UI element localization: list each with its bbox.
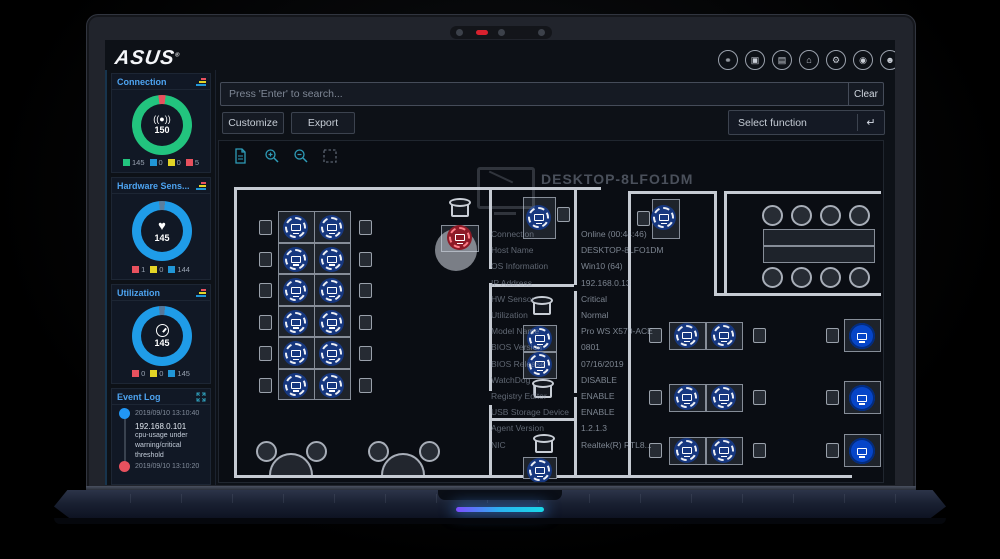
event-dot[interactable]	[119, 408, 130, 419]
tooltip-label: Utilization	[491, 310, 581, 320]
legend-swatch	[150, 370, 157, 377]
chair	[637, 211, 650, 226]
legend-value: 0	[159, 158, 163, 167]
legend-item: 0	[132, 369, 145, 378]
monitor-glyph	[534, 214, 544, 221]
legend-item: 144	[168, 265, 190, 274]
wall	[491, 418, 574, 421]
display-device-icon[interactable]	[849, 438, 875, 464]
monitor-glyph	[682, 447, 692, 454]
chair	[359, 346, 372, 361]
round-chair	[306, 441, 327, 462]
monitor-glyph	[682, 332, 692, 339]
round-chair	[820, 205, 841, 226]
round-chair	[791, 267, 812, 288]
broadcast-icon: ((●))	[153, 115, 170, 124]
chair	[826, 443, 839, 458]
device-icon[interactable]	[711, 323, 736, 348]
round-chair	[762, 205, 783, 226]
base-bottom-lip	[54, 518, 946, 524]
device-icon[interactable]	[283, 373, 308, 398]
legend-swatch	[150, 266, 157, 273]
device-icon[interactable]	[283, 215, 308, 240]
export-button[interactable]: Export	[291, 112, 355, 134]
tooltip-value: Normal	[581, 310, 608, 320]
tooltip-label: OS Information	[491, 261, 581, 271]
chair	[259, 220, 272, 235]
device-icon[interactable]	[319, 373, 344, 398]
monitor-glyph	[327, 350, 337, 357]
legend-swatch	[150, 159, 157, 166]
connection-widget-title: Connection	[117, 77, 167, 87]
tooltip-label: Connection	[491, 229, 581, 239]
clear-button[interactable]: Clear	[848, 83, 883, 105]
round-chair	[849, 267, 870, 288]
legend-value: 0	[159, 265, 163, 274]
device-icon[interactable]	[283, 278, 308, 303]
tooltip-value: Realtek(R) RTL8...	[581, 440, 652, 450]
expand-icon[interactable]	[196, 392, 206, 402]
tooltip-value: 192.168.0.13	[581, 278, 631, 288]
trackpad-glow-bar	[456, 507, 544, 512]
chair	[753, 390, 766, 405]
tooltip-field: OS InformationWin10 (64)	[491, 261, 623, 271]
chair	[826, 328, 839, 343]
heart-pulse-icon: ♥	[158, 219, 166, 232]
wall	[724, 191, 881, 194]
device-icon-critical[interactable]	[447, 225, 472, 250]
legend-swatch	[168, 159, 175, 166]
tooltip-device-name: DESKTOP-8LFO1DM	[541, 171, 693, 187]
tooltip-field: BIOS Release07/16/2019	[491, 359, 624, 369]
legend-value: 0	[159, 369, 163, 378]
sidebar: Connection ((●)) 150 145005 Hardware Sen…	[105, 70, 216, 485]
round-chair	[419, 441, 440, 462]
tooltip-field: NICRealtek(R) RTL8...	[491, 440, 652, 450]
chair	[259, 252, 272, 267]
wall	[714, 293, 881, 296]
remote-link-icon[interactable]: ⚭	[718, 50, 738, 70]
monitor-glyph	[857, 333, 867, 340]
connection-widget: Connection ((●)) 150 145005	[111, 73, 211, 173]
webcam-module	[450, 26, 552, 39]
device-icon[interactable]	[319, 341, 344, 366]
display-device-icon[interactable]	[849, 385, 875, 411]
snapshot-icon[interactable]: ▣	[745, 50, 765, 70]
map-panel: DESKTOP-8LFO1DM ConnectionOnline (00:44:…	[218, 140, 884, 483]
legend-value: 145	[177, 369, 190, 378]
utilization-widget: Utilization 145 00145	[111, 284, 211, 384]
hardware-legend: 10144	[112, 265, 210, 274]
round-chair	[791, 205, 812, 226]
tooltip-label: HW Sensor	[491, 294, 581, 304]
chair	[359, 252, 372, 267]
registered-mark: ®	[175, 52, 180, 58]
chair	[259, 346, 272, 361]
device-icon[interactable]	[674, 323, 699, 348]
monitor-glyph	[291, 319, 301, 326]
device-icon[interactable]	[651, 205, 676, 230]
tooltip-field: Agent Version1.2.1.3	[491, 423, 607, 433]
monitor-glyph	[291, 287, 301, 294]
monitor-glyph	[291, 224, 301, 231]
event-dot[interactable]	[119, 461, 130, 472]
tooltip-field: Model NamePro WS X570-ACE	[491, 326, 653, 336]
legend-swatch	[123, 159, 130, 166]
monitor-glyph	[327, 382, 337, 389]
monitor-glyph	[719, 447, 729, 454]
wall	[714, 191, 717, 296]
chair	[826, 390, 839, 405]
tooltip-label: NIC	[491, 440, 581, 450]
trash-bin	[451, 203, 469, 217]
display-device-icon[interactable]	[849, 323, 875, 349]
gauge-icon	[156, 324, 169, 337]
device-icon[interactable]	[711, 385, 736, 410]
camera-lens2-icon	[538, 29, 545, 36]
monitor-glyph	[327, 224, 337, 231]
mini-chart-icon[interactable]	[196, 78, 206, 86]
search-bar: Clear	[220, 82, 884, 106]
tooltip-value: 0801	[581, 342, 600, 352]
tooltip-label: Host Name	[491, 245, 581, 255]
tooltip-value: Critical	[581, 294, 607, 304]
event-timestamp: 2019/09/10 13:10:20	[135, 463, 199, 470]
organization-icon[interactable]: ⌂	[799, 50, 819, 70]
hinge-recess	[438, 490, 562, 500]
asus-logo: ASUS®	[113, 47, 180, 70]
legend-item: 0	[168, 158, 181, 167]
legend-value: 144	[177, 265, 190, 274]
legend-swatch	[132, 266, 139, 273]
chair	[259, 378, 272, 393]
device-icon[interactable]	[319, 247, 344, 272]
monitor-glyph	[327, 319, 337, 326]
customize-button[interactable]: Customize	[222, 112, 284, 134]
conference-table	[763, 229, 875, 246]
event-log-title: Event Log	[117, 392, 161, 402]
event-text: warning/critical	[135, 442, 181, 449]
monitor-glyph	[857, 395, 867, 402]
chair	[259, 283, 272, 298]
legend-value: 0	[177, 158, 181, 167]
hardware-ring-chart[interactable]: ♥ 145	[132, 201, 192, 261]
monitor-glyph	[327, 287, 337, 294]
camera-lens-icon	[456, 29, 463, 36]
event-text: threshold	[135, 452, 164, 459]
monitor-glyph	[857, 448, 867, 455]
chair	[753, 443, 766, 458]
hardware-sensor-widget: Hardware Sens... ♥ 145 10144	[111, 177, 211, 280]
tooltip-field: ConnectionOnline (00:44:46)	[491, 229, 647, 239]
tooltip-field: Host NameDESKTOP-8LFO1DM	[491, 245, 664, 255]
chair	[359, 283, 372, 298]
legend-item: 145	[168, 369, 190, 378]
chair	[359, 378, 372, 393]
device-icon[interactable]	[319, 278, 344, 303]
monitor-glyph	[291, 256, 301, 263]
legend-value: 5	[195, 158, 199, 167]
tooltip-label: Registry Editor	[491, 391, 581, 401]
tooltip-value: Pro WS X570-ACE	[581, 326, 653, 336]
chair	[259, 315, 272, 330]
tooltip-label: BIOS Release	[491, 359, 581, 369]
tooltip-field: HW SensorCritical	[491, 294, 607, 304]
server-list-icon[interactable]: ▤	[772, 50, 792, 70]
monitor-glyph	[535, 467, 545, 474]
tooltip-value: ENABLE	[581, 391, 615, 401]
monitor-glyph	[659, 214, 669, 221]
round-chair	[849, 205, 870, 226]
monitor-glyph	[719, 394, 729, 401]
connection-ring-chart[interactable]: ((●)) 150	[132, 95, 192, 155]
device-icon[interactable]	[711, 438, 736, 463]
laptop-screen: ASUS® ⚭▣▤⌂⚙◉☻ Clear Customize Export Sel…	[105, 40, 895, 485]
tooltip-field: BIOS Version0801	[491, 342, 600, 352]
security-icon[interactable]: ◉	[853, 50, 873, 70]
legend-item: 0	[150, 369, 163, 378]
chair	[557, 207, 570, 222]
hardware-count: 145	[154, 234, 169, 243]
device-icon[interactable]	[319, 310, 344, 335]
connection-count: 150	[154, 126, 169, 135]
round-chair	[368, 441, 389, 462]
ir-sensor-icon	[498, 29, 505, 36]
monitor-glyph	[682, 394, 692, 401]
utilization-ring-chart[interactable]: 145	[132, 306, 192, 366]
tooltip-label: USB Storage Device	[491, 407, 581, 417]
tooltip-value: Win10 (64)	[581, 261, 623, 271]
device-icon[interactable]	[319, 215, 344, 240]
monitor-glyph	[719, 332, 729, 339]
legend-item: 0	[150, 265, 163, 274]
device-icon[interactable]	[674, 385, 699, 410]
legend-item: 5	[186, 158, 199, 167]
connection-legend: 145005	[112, 158, 210, 167]
legend-swatch	[168, 266, 175, 273]
device-icon[interactable]	[283, 310, 308, 335]
monitor-watermark-icon	[477, 167, 535, 209]
monitor-glyph	[455, 234, 465, 241]
device-icon[interactable]	[674, 438, 699, 463]
tooltip-value: DISABLE	[581, 375, 617, 385]
tooltip-field: USB Storage DeviceENABLE	[491, 407, 615, 417]
monitor-glyph	[291, 350, 301, 357]
chair	[753, 328, 766, 343]
legend-value: 0	[141, 369, 145, 378]
round-chair	[820, 267, 841, 288]
return-icon[interactable]: ↵	[857, 114, 884, 130]
legend-item: 145	[123, 158, 145, 167]
event-log-list: 2019/09/10 13:10:40192.168.0.101cpu-usag…	[112, 404, 210, 484]
chair	[649, 390, 662, 405]
tooltip-value: 07/16/2019	[581, 359, 624, 369]
legend-swatch	[132, 370, 139, 377]
monitor-glyph	[291, 382, 301, 389]
tooltip-label: Model Name	[491, 326, 581, 336]
utilization-legend: 00145	[112, 369, 210, 378]
tooltip-field: IP Address192.168.0.13	[491, 278, 631, 288]
event-text: cpu-usage under	[135, 432, 188, 439]
utilization-count: 145	[154, 339, 169, 348]
settings-icon[interactable]: ⚙	[826, 50, 846, 70]
tooltip-label: WatchDog	[491, 375, 581, 385]
camera-led-icon	[476, 30, 488, 35]
device-icon[interactable]	[527, 458, 552, 483]
wall	[234, 187, 601, 190]
legend-swatch	[186, 159, 193, 166]
device-icon[interactable]	[283, 341, 308, 366]
monitor-glyph	[327, 256, 337, 263]
tooltip-value: 1.2.1.3	[581, 423, 607, 433]
wall	[628, 191, 715, 194]
legend-swatch	[168, 370, 175, 377]
event-log-widget: Event Log 2019/09/10 13:10:40192.168.0.1…	[111, 388, 211, 485]
search-input[interactable]	[221, 83, 848, 105]
chair	[359, 220, 372, 235]
round-chair	[762, 267, 783, 288]
wall	[724, 191, 727, 296]
tooltip-label: IP Address	[491, 278, 581, 288]
tooltip-field: UtilizationNormal	[491, 310, 608, 320]
legend-item: 0	[150, 158, 163, 167]
chair	[359, 315, 372, 330]
select-function-label: Select function	[729, 117, 857, 129]
event-timestamp: 2019/09/10 13:10:40	[135, 410, 199, 417]
timeline-line	[124, 418, 126, 464]
tooltip-label: Agent Version	[491, 423, 581, 433]
conference-table	[763, 246, 875, 263]
tooltip-value: Online (00:44:46)	[581, 229, 647, 239]
tooltip-field: Registry EditorENABLE	[491, 391, 615, 401]
legend-value: 1	[141, 265, 145, 274]
wall	[234, 187, 237, 478]
page: { "brand": { "logo_text": "ASUS", "regis…	[0, 0, 1000, 559]
round-chair	[256, 441, 277, 462]
mini-chart-icon[interactable]	[196, 289, 206, 297]
device-icon[interactable]	[283, 247, 308, 272]
hardware-widget-title: Hardware Sens...	[117, 181, 190, 191]
tooltip-value: DESKTOP-8LFO1DM	[581, 245, 664, 255]
utilization-widget-title: Utilization	[117, 288, 160, 298]
tooltip-value: ENABLE	[581, 407, 615, 417]
tooltip-label: BIOS Version	[491, 342, 581, 352]
tooltip-field: WatchDogDISABLE	[491, 375, 617, 385]
mini-chart-icon[interactable]	[196, 182, 206, 190]
legend-item: 1	[132, 265, 145, 274]
legend-value: 145	[132, 158, 145, 167]
account-icon[interactable]: ☻	[880, 50, 895, 70]
event-text: 192.168.0.101	[135, 422, 186, 431]
select-function-dropdown[interactable]: Select function ↵	[728, 110, 885, 135]
